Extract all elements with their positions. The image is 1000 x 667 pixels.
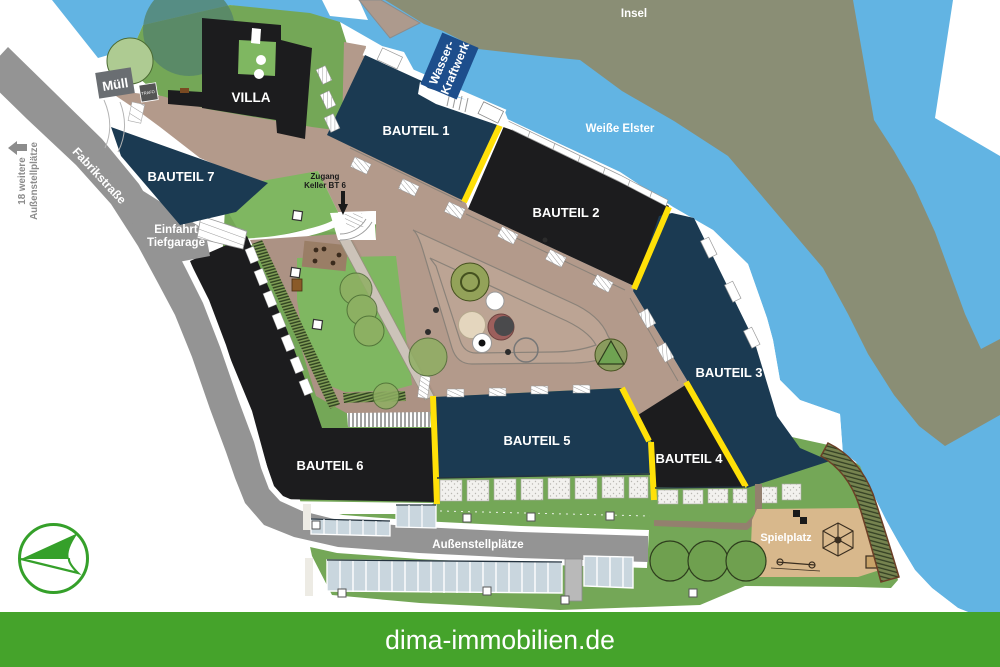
svg-text:Außenstellplätze: Außenstellplätze bbox=[29, 142, 40, 220]
svg-text:Weiße Elster: Weiße Elster bbox=[586, 123, 655, 135]
svg-text:Zugang: Zugang bbox=[311, 172, 340, 181]
svg-text:BAUTEIL 2: BAUTEIL 2 bbox=[533, 205, 600, 220]
svg-text:18 weitere: 18 weitere bbox=[17, 157, 28, 205]
svg-text:BAUTEIL 3: BAUTEIL 3 bbox=[696, 365, 763, 380]
svg-text:Insel: Insel bbox=[621, 8, 647, 20]
svg-text:Außenstellplätze: Außenstellplätze bbox=[432, 539, 523, 551]
svg-text:VILLA: VILLA bbox=[232, 90, 271, 105]
svg-text:Keller BT 6: Keller BT 6 bbox=[304, 181, 346, 190]
svg-text:dima-immobilien.de: dima-immobilien.de bbox=[385, 625, 615, 655]
svg-text:BAUTEIL 4: BAUTEIL 4 bbox=[656, 451, 724, 466]
svg-text:Spielplatz: Spielplatz bbox=[760, 532, 812, 544]
svg-text:Tiefgarage: Tiefgarage bbox=[147, 237, 205, 249]
svg-text:BAUTEIL 5: BAUTEIL 5 bbox=[504, 433, 571, 448]
svg-text:BAUTEIL 1: BAUTEIL 1 bbox=[383, 123, 450, 138]
svg-text:Einfahrt: Einfahrt bbox=[154, 224, 198, 236]
svg-text:BAUTEIL 7: BAUTEIL 7 bbox=[148, 169, 215, 184]
svg-text:BAUTEIL 6: BAUTEIL 6 bbox=[297, 458, 364, 473]
